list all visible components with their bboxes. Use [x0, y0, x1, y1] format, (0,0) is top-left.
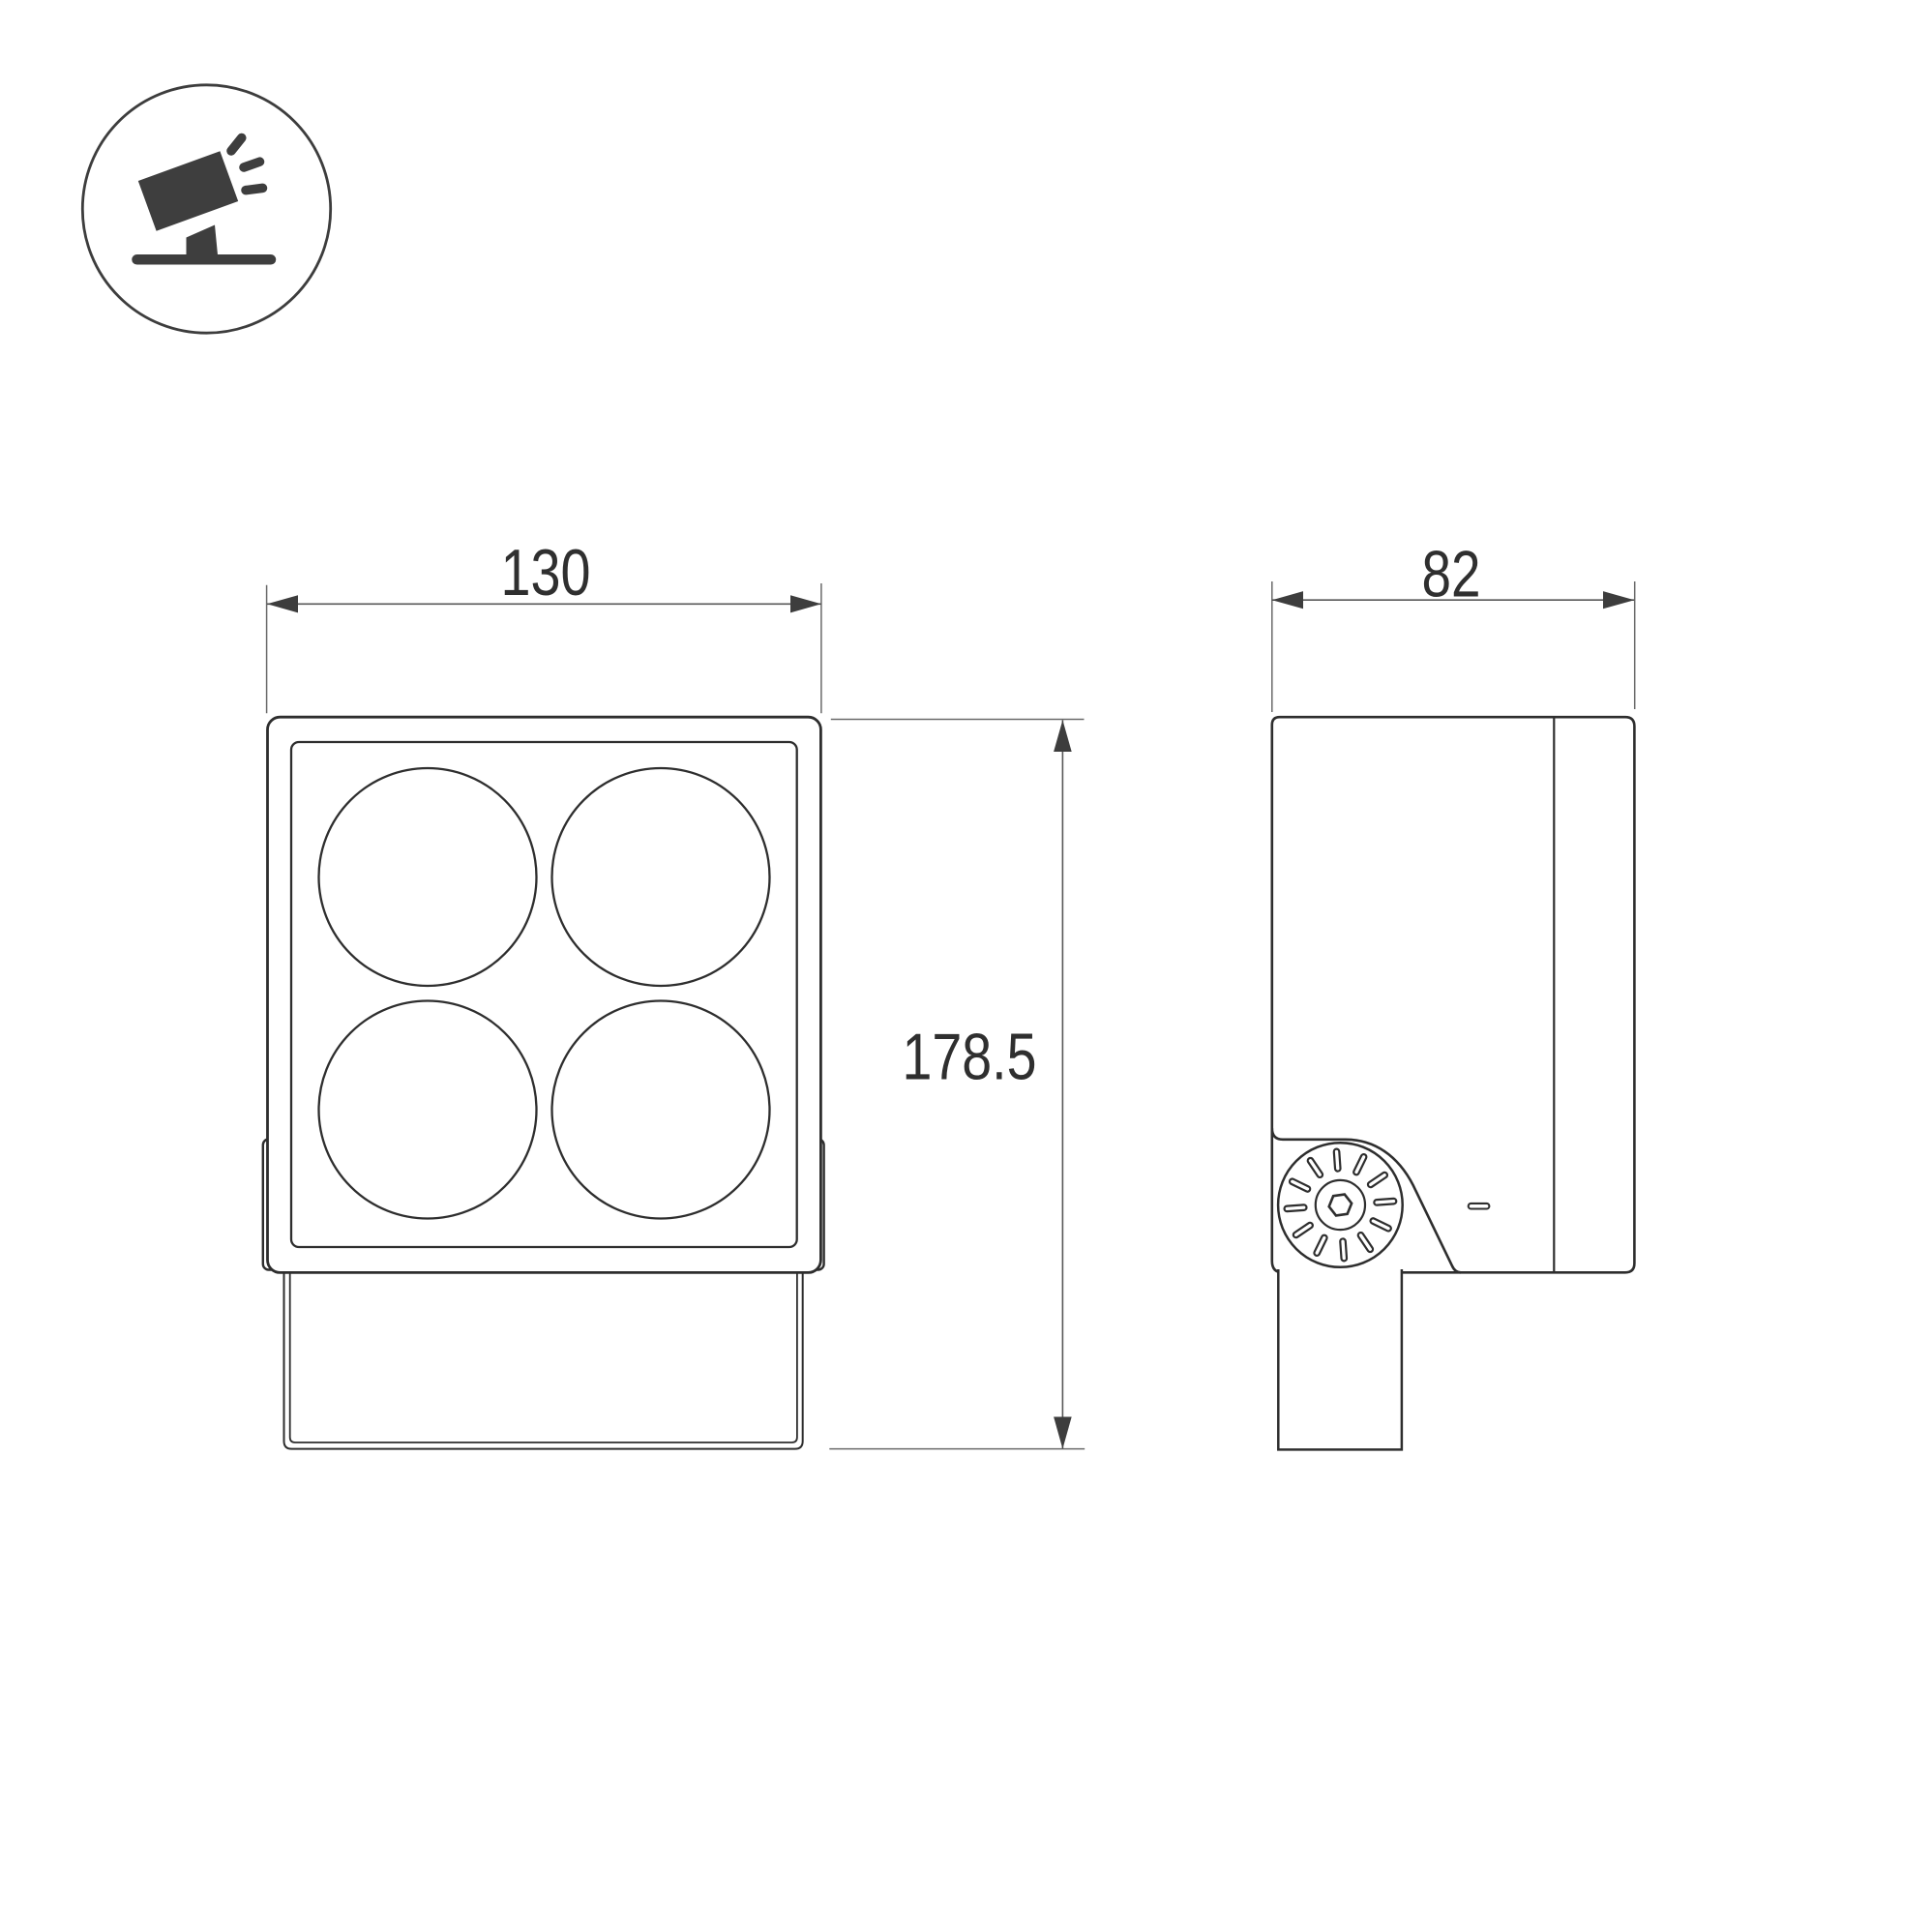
svg-text:178.5: 178.5: [903, 1021, 1037, 1094]
svg-text:82: 82: [1422, 538, 1481, 611]
svg-text:130: 130: [501, 536, 591, 609]
